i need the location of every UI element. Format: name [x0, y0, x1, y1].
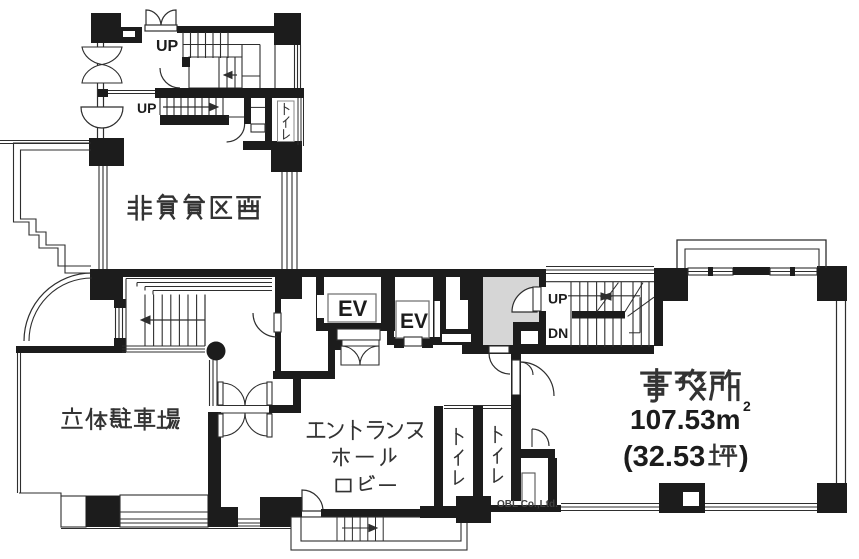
- svg-text:EV: EV: [338, 296, 368, 321]
- svg-text:UP: UP: [156, 38, 179, 55]
- svg-text:UP: UP: [548, 291, 567, 307]
- svg-text:UP: UP: [137, 100, 156, 116]
- svg-text:(32.53: (32.53: [623, 441, 705, 473]
- svg-text:OBL Co.,Ltd.: OBL Co.,Ltd.: [497, 499, 558, 510]
- svg-text:EV: EV: [400, 310, 428, 333]
- svg-text:DN: DN: [548, 325, 568, 341]
- svg-text:): ): [739, 441, 749, 473]
- svg-text:107.53m: 107.53m: [630, 404, 741, 435]
- svg-text:2: 2: [743, 398, 751, 414]
